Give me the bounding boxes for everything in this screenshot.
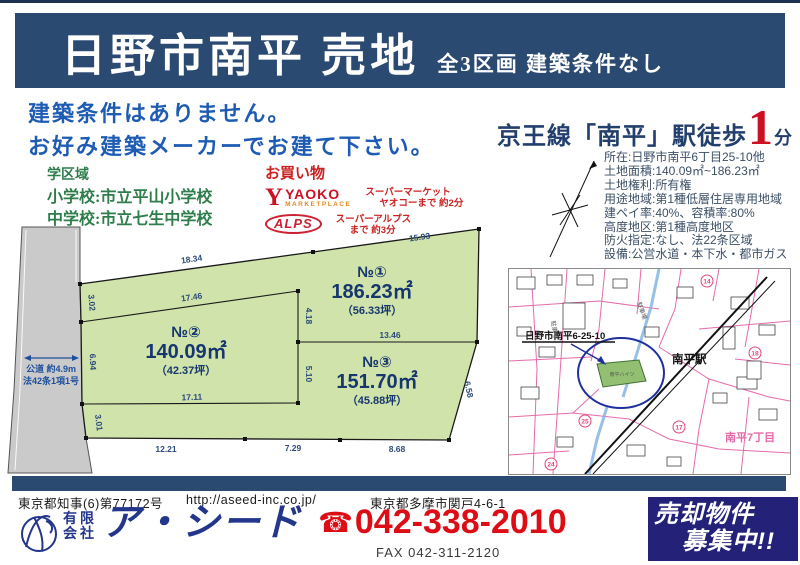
yaoko-row: Y YAOKO MARKETPLACE スーパーマーケット ヤオコーまで 約2分 (265, 187, 463, 209)
banner-line-1: 売却物件 (654, 501, 792, 528)
map-district-label: 南平7丁目 (725, 430, 775, 444)
detail-land-rights: 土地権利:所有権 (604, 179, 787, 193)
footer-separator-bar (12, 476, 786, 491)
svg-text:186.23㎡: 186.23㎡ (331, 279, 412, 303)
detail-location: 所在:日野市南平6丁目25-10他 (604, 151, 787, 165)
catch-line-1: 建築条件はありません。 (28, 97, 435, 130)
company-name-logo: ア・シード (102, 504, 302, 542)
detail-land-area: 土地面積:140.09㎡~186.23㎡ (604, 165, 787, 179)
map-station-label: 南平駅 (672, 352, 707, 366)
banner-line-2: 募集中!! (654, 528, 792, 555)
svg-text:18: 18 (751, 351, 759, 358)
svg-text:17: 17 (675, 425, 683, 432)
map-building-label: 南平ハイツ (610, 371, 635, 378)
header-bar: 日野市南平 売地 全3区画 建築条件なし (15, 13, 785, 88)
shopping-heading: お買い物 (265, 162, 463, 183)
svg-text:（42.37坪）: （42.37坪） (156, 364, 217, 377)
road-label-2: 法42条1項1号 (23, 375, 79, 386)
detail-zoning: 用途地域:第1種低層住居専用地域 (604, 193, 787, 207)
page-subtitle: 全3区画 建築条件なし (437, 54, 664, 75)
svg-text:№①: №① (357, 264, 386, 281)
svg-text:140.09㎡: 140.09㎡ (145, 339, 226, 363)
svg-text:№②: №② (171, 324, 200, 341)
svg-text:25: 25 (581, 419, 589, 426)
detail-coverage-ratio: 建ペイ率:40%、容積率:80% (604, 207, 787, 221)
svg-text:24: 24 (547, 462, 555, 469)
map-callout-label: 日野市南平6-25-10 (525, 330, 605, 342)
dim-top-left: 18.34 (180, 253, 203, 266)
location-map: 南平ハイツ 日野市南平6-25-10 南平駅 南平7丁目 駐車場 駐車場 14 … (508, 268, 791, 475)
company-emblem-icon (16, 507, 62, 557)
dim-no2-bottom: 17.11 (181, 392, 202, 403)
dim-left-top: 3.02 (86, 294, 97, 312)
svg-text:（45.88坪）: （45.88坪） (347, 394, 408, 407)
dim-bottom-right: 8.68 (389, 444, 406, 454)
land-plot-diagram: 18.34 15.93 3.02 6.94 3.01 17.46 4.18 5.… (0, 222, 500, 475)
road-label-1: 公道 約4.9m (26, 363, 76, 374)
catch-copy: 建築条件はありません。 お好み建築メーカーでお建て下さい。 (28, 97, 435, 163)
svg-text:（56.33坪）: （56.33坪） (342, 304, 403, 317)
yaoko-description: スーパーマーケット ヤオコーまで 約2分 (365, 187, 463, 209)
elementary-school: 小学校:市立平山小学校 (47, 187, 212, 209)
yaoko-logo-subtext: MARKETPLACE (285, 201, 351, 208)
top-edge-strip (0, 0, 800, 3)
property-details: 所在:日野市南平6丁目25-10他 土地面積:140.09㎡~186.23㎡ 土… (604, 151, 787, 262)
svg-text:14: 14 (703, 279, 711, 286)
detail-utilities: 設備:公営水道・本下水・都市ガス (604, 248, 787, 262)
yaoko-logo: Y YAOKO MARKETPLACE (265, 187, 351, 209)
yaoko-y-icon: Y (265, 187, 283, 209)
dim-divider: 13.46 (379, 330, 401, 340)
fax-number: FAX 042-311-2120 (376, 545, 500, 560)
school-district-heading: 学区域 (47, 164, 212, 184)
yaoko-logo-text: YAOKO (285, 187, 351, 201)
company-type: 有限 会社 (63, 511, 97, 541)
dim-bottom-mid: 7.29 (285, 443, 302, 453)
svg-text:151.70㎡: 151.70㎡ (336, 369, 417, 393)
station-minutes-unit: 分 (774, 124, 792, 150)
catch-line-2: お好み建築メーカーでお建て下さい。 (28, 130, 435, 163)
dim-left-bottom: 3.01 (93, 414, 105, 432)
dim-right-slant: 6.58 (462, 380, 475, 399)
dim-no2-right-lower: 5.10 (304, 366, 314, 383)
compass-north-icon (540, 153, 610, 265)
parcel-outline (80, 229, 479, 440)
dim-bottom-left: 12.21 (155, 444, 177, 454)
dim-no2-right-upper: 4.18 (304, 308, 314, 325)
school-district: 学区域 小学校:市立平山小学校 中学校:市立七生中学校 (47, 164, 212, 231)
recruiting-banner: 売却物件 募集中!! (648, 497, 798, 561)
svg-text:№③: №③ (362, 354, 391, 371)
station-access: 京王線「南平」駅徒歩 1 分 (497, 102, 792, 152)
phone-number: ☎ 042-338-2010 (318, 505, 567, 539)
station-walk-minutes: 1 (748, 102, 773, 152)
road-strip (8, 227, 92, 473)
flyer-page: 日野市南平 売地 全3区画 建築条件なし 建築条件はありません。 お好み建築メー… (0, 0, 800, 565)
phone-number-text: 042-338-2010 (355, 505, 567, 539)
page-title: 日野市南平 売地 (61, 34, 419, 79)
station-access-text: 京王線「南平」駅徒歩 (497, 116, 747, 151)
dim-left-mid: 6.94 (88, 353, 99, 370)
phone-icon: ☎ (318, 506, 353, 539)
